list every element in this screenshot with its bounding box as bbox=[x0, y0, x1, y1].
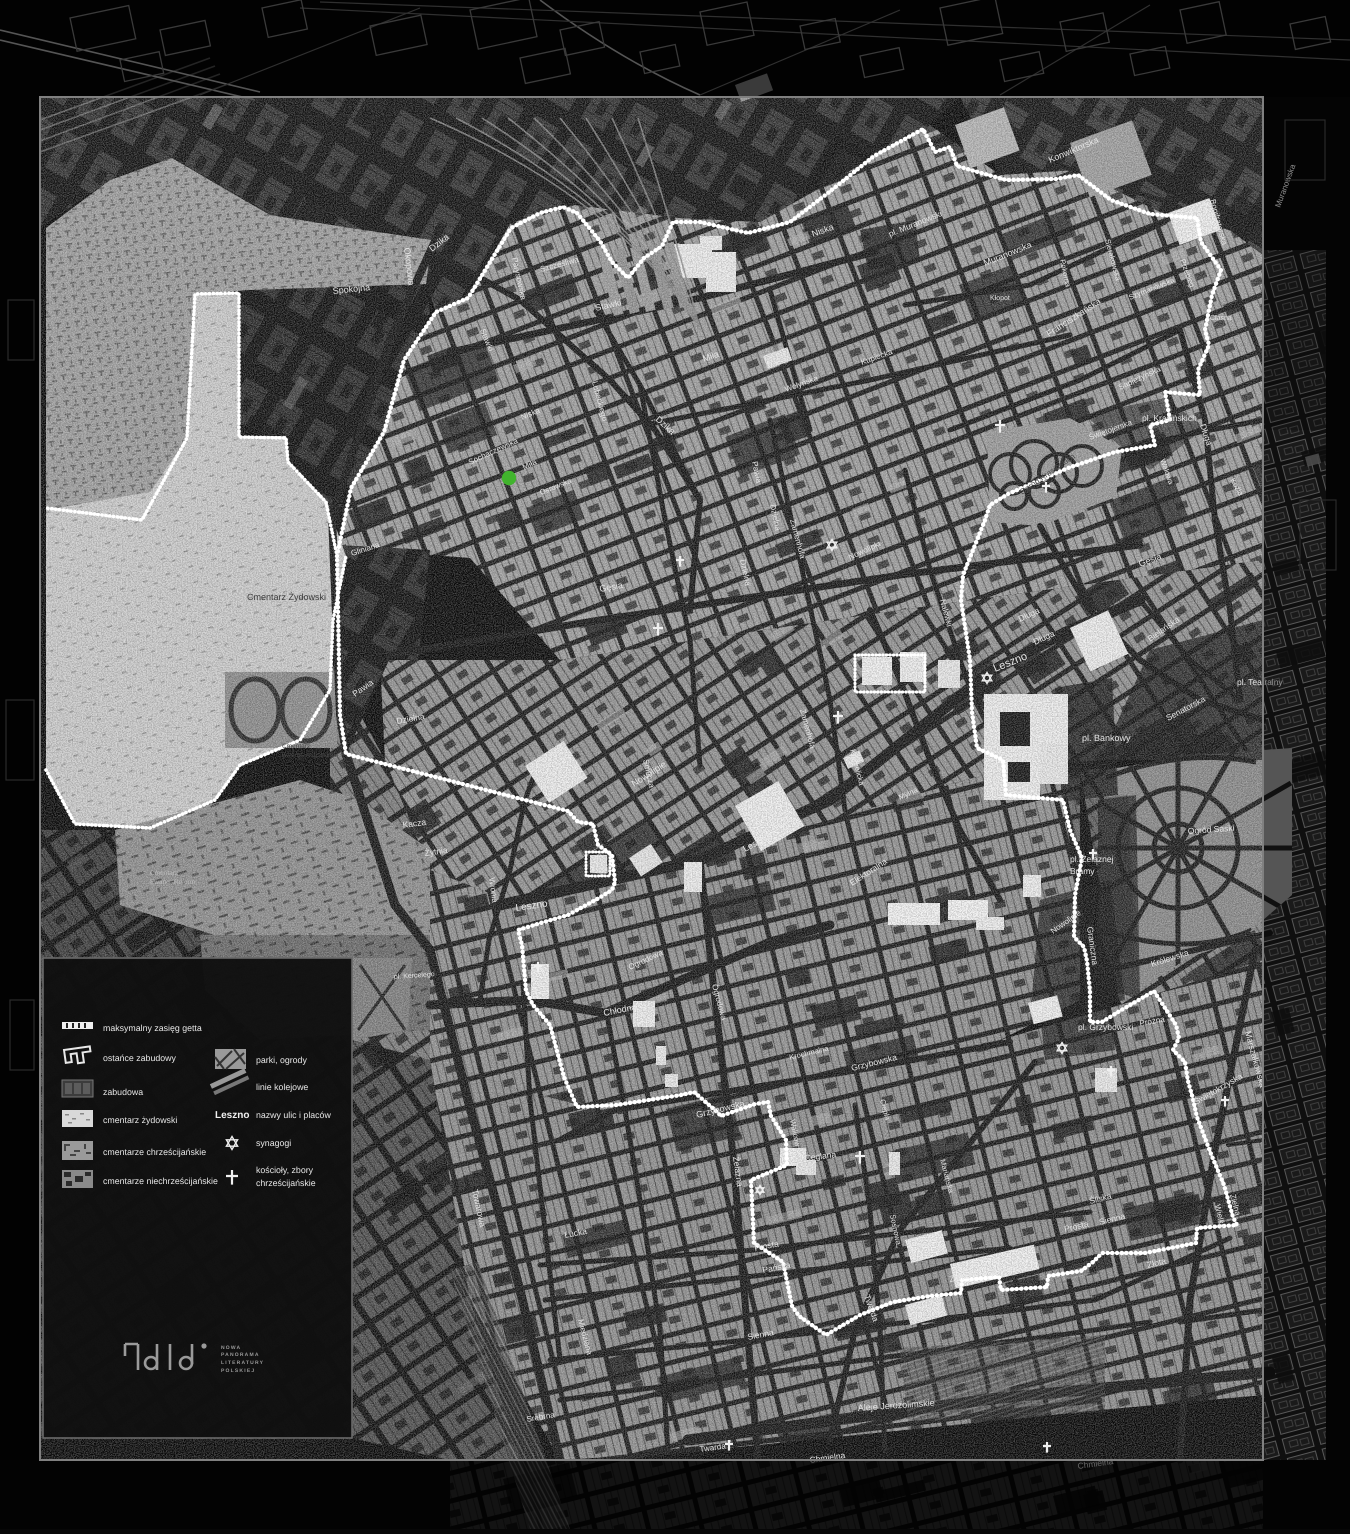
svg-text:pl. Żelaznej: pl. Żelaznej bbox=[1070, 854, 1114, 864]
svg-text:synagogi: synagogi bbox=[256, 1138, 291, 1148]
svg-text:parki, ogrody: parki, ogrody bbox=[256, 1055, 307, 1065]
svg-text:zabudowa: zabudowa bbox=[103, 1087, 143, 1097]
svg-text:LITERATURY: LITERATURY bbox=[221, 1360, 264, 1366]
svg-text:Cmentarz Żydowski: Cmentarz Żydowski bbox=[247, 592, 326, 602]
svg-text:kościoły, zbory: kościoły, zbory bbox=[256, 1165, 314, 1175]
svg-text:Cmentarz: Cmentarz bbox=[150, 870, 178, 877]
svg-text:POLSKIEJ: POLSKIEJ bbox=[221, 1368, 255, 1374]
svg-text:Ewang.-Augsburski: Ewang.-Augsburski bbox=[282, 752, 338, 759]
svg-text:Ciasna: Ciasna bbox=[1210, 314, 1232, 322]
svg-text:Ewang.-Reform.: Ewang.-Reform. bbox=[150, 879, 197, 886]
svg-text:ostańce zabudowy: ostańce zabudowy bbox=[103, 1053, 176, 1063]
svg-text:chrześcijańskie: chrześcijańskie bbox=[256, 1178, 316, 1188]
svg-text:pl. Grzybowski: pl. Grzybowski bbox=[1078, 1022, 1133, 1032]
svg-text:cmentarze chrześcijańskie: cmentarze chrześcijańskie bbox=[103, 1147, 206, 1157]
svg-text:NOWA: NOWA bbox=[221, 1345, 241, 1351]
svg-text:pl. Krasińskich: pl. Krasińskich bbox=[1142, 413, 1197, 423]
svg-text:Bramy: Bramy bbox=[1070, 866, 1095, 876]
svg-text:cmentarze niechrześcijańskie: cmentarze niechrześcijańskie bbox=[103, 1176, 218, 1186]
svg-text:Kłopot: Kłopot bbox=[990, 294, 1010, 302]
svg-text:nazwy ulic i placów: nazwy ulic i placów bbox=[256, 1110, 331, 1120]
svg-text:Leszno: Leszno bbox=[215, 1110, 249, 1121]
svg-text:linie kolejowe: linie kolejowe bbox=[256, 1082, 308, 1092]
svg-text:cmentarz żydowski: cmentarz żydowski bbox=[103, 1115, 177, 1125]
svg-text:maksymalny zasięg getta: maksymalny zasięg getta bbox=[103, 1023, 202, 1033]
svg-text:Cmentarz: Cmentarz bbox=[282, 743, 310, 750]
svg-text:PANORAMA: PANORAMA bbox=[221, 1352, 260, 1358]
svg-text:pl. Bankowy: pl. Bankowy bbox=[1082, 733, 1131, 743]
